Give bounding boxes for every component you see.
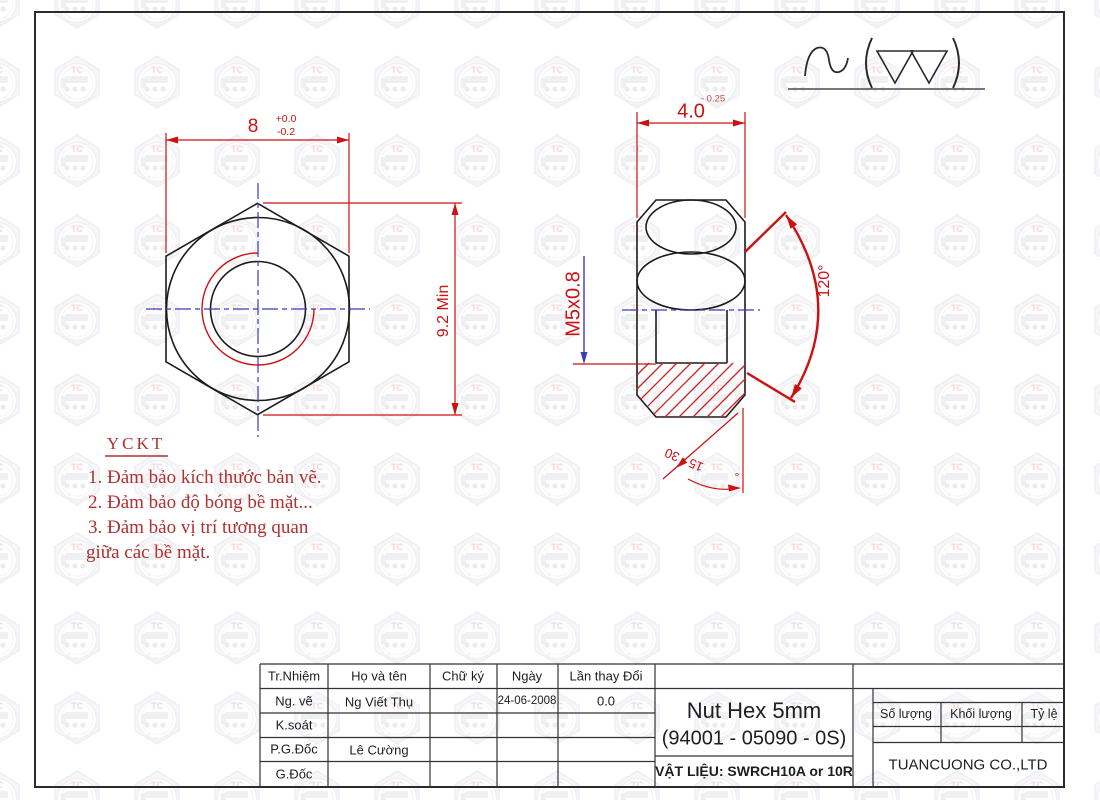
- side-view-outline: [637, 200, 745, 417]
- company-name: TUANCUONG CO.,LTD: [889, 757, 1048, 774]
- row-director-role: G.Đốc: [276, 767, 313, 782]
- row-vicedirector-role: P.G.Đốc: [270, 742, 317, 757]
- qty-label: Số lượng: [880, 707, 932, 721]
- scale-label: Tỷ lệ: [1030, 707, 1057, 721]
- section-hatch: [637, 363, 745, 417]
- row-drawer-name: Ng Viết Thụ: [345, 695, 413, 710]
- part-number: (94001 - 05090 - 0S): [662, 728, 847, 751]
- triangle-finish-icon-2: [911, 51, 947, 83]
- surface-finish-symbol: [788, 38, 985, 89]
- th-signature: Chữ ký: [442, 669, 484, 684]
- note-line-3: 3. Đảm bảo vị trí tương quan: [88, 517, 308, 539]
- chamfer-degree-mark: °: [735, 470, 740, 484]
- th-name: Họ và tên: [351, 669, 407, 684]
- th-role: Tr.Nhiệm: [268, 669, 320, 684]
- thread-label: M5x0.8: [563, 271, 586, 337]
- lower-chamfer-curve: [637, 252, 745, 310]
- width-tol-upper: +0.0: [276, 113, 297, 125]
- note-line-2: 2. Đảm bảo độ bóng bề mặt...: [88, 492, 313, 514]
- row-drawer-role: Ng. vẽ: [275, 694, 313, 709]
- triangle-finish-icon-1: [877, 51, 913, 83]
- front-centerlines: [146, 183, 370, 437]
- height-dim-value: 9.2 Min: [435, 285, 453, 337]
- row-drawer-revision: 0.0: [597, 694, 615, 709]
- sheet-border: [35, 12, 1064, 787]
- thread-leader-arrow: [581, 352, 588, 364]
- th-date: Ngày: [512, 669, 542, 684]
- part-title: Nut Hex 5mm: [687, 698, 821, 724]
- angle-value: 120°: [816, 264, 834, 297]
- note-line-4: giữa các bề mặt.: [86, 542, 210, 564]
- thickness-tol: - 0.25: [701, 94, 725, 105]
- row-checker-role: K.soát: [276, 718, 313, 733]
- width-dim-value: 8: [248, 116, 259, 138]
- close-paren-icon: [953, 38, 959, 88]
- angle-dimension-arrows: [786, 215, 802, 398]
- drawing-sheet: TC TC TC: [0, 0, 1100, 800]
- material-label: VẬT LIỆU: SWRCH10A or 10R: [655, 763, 853, 779]
- upper-chamfer-curve: [646, 200, 736, 254]
- width-tol-lower: -0.2: [277, 126, 295, 138]
- row-vicedirector-name: Lê Cường: [349, 743, 408, 758]
- notes-title: YCKT: [107, 434, 165, 454]
- note-line-1: 1. Đảm bảo kích thước bản vẽ.: [88, 467, 322, 489]
- open-paren-icon: [866, 38, 872, 88]
- drawing-geometry: [0, 0, 1100, 800]
- th-revision: Lần thay Đổi: [570, 669, 643, 684]
- weight-label: Khối lượng: [950, 707, 1012, 721]
- roughness-squiggle-icon: [805, 48, 848, 77]
- row-drawer-date: 24-06-2008: [498, 695, 557, 707]
- angle-dimension-lines: [745, 212, 818, 402]
- side-profile: [637, 200, 745, 417]
